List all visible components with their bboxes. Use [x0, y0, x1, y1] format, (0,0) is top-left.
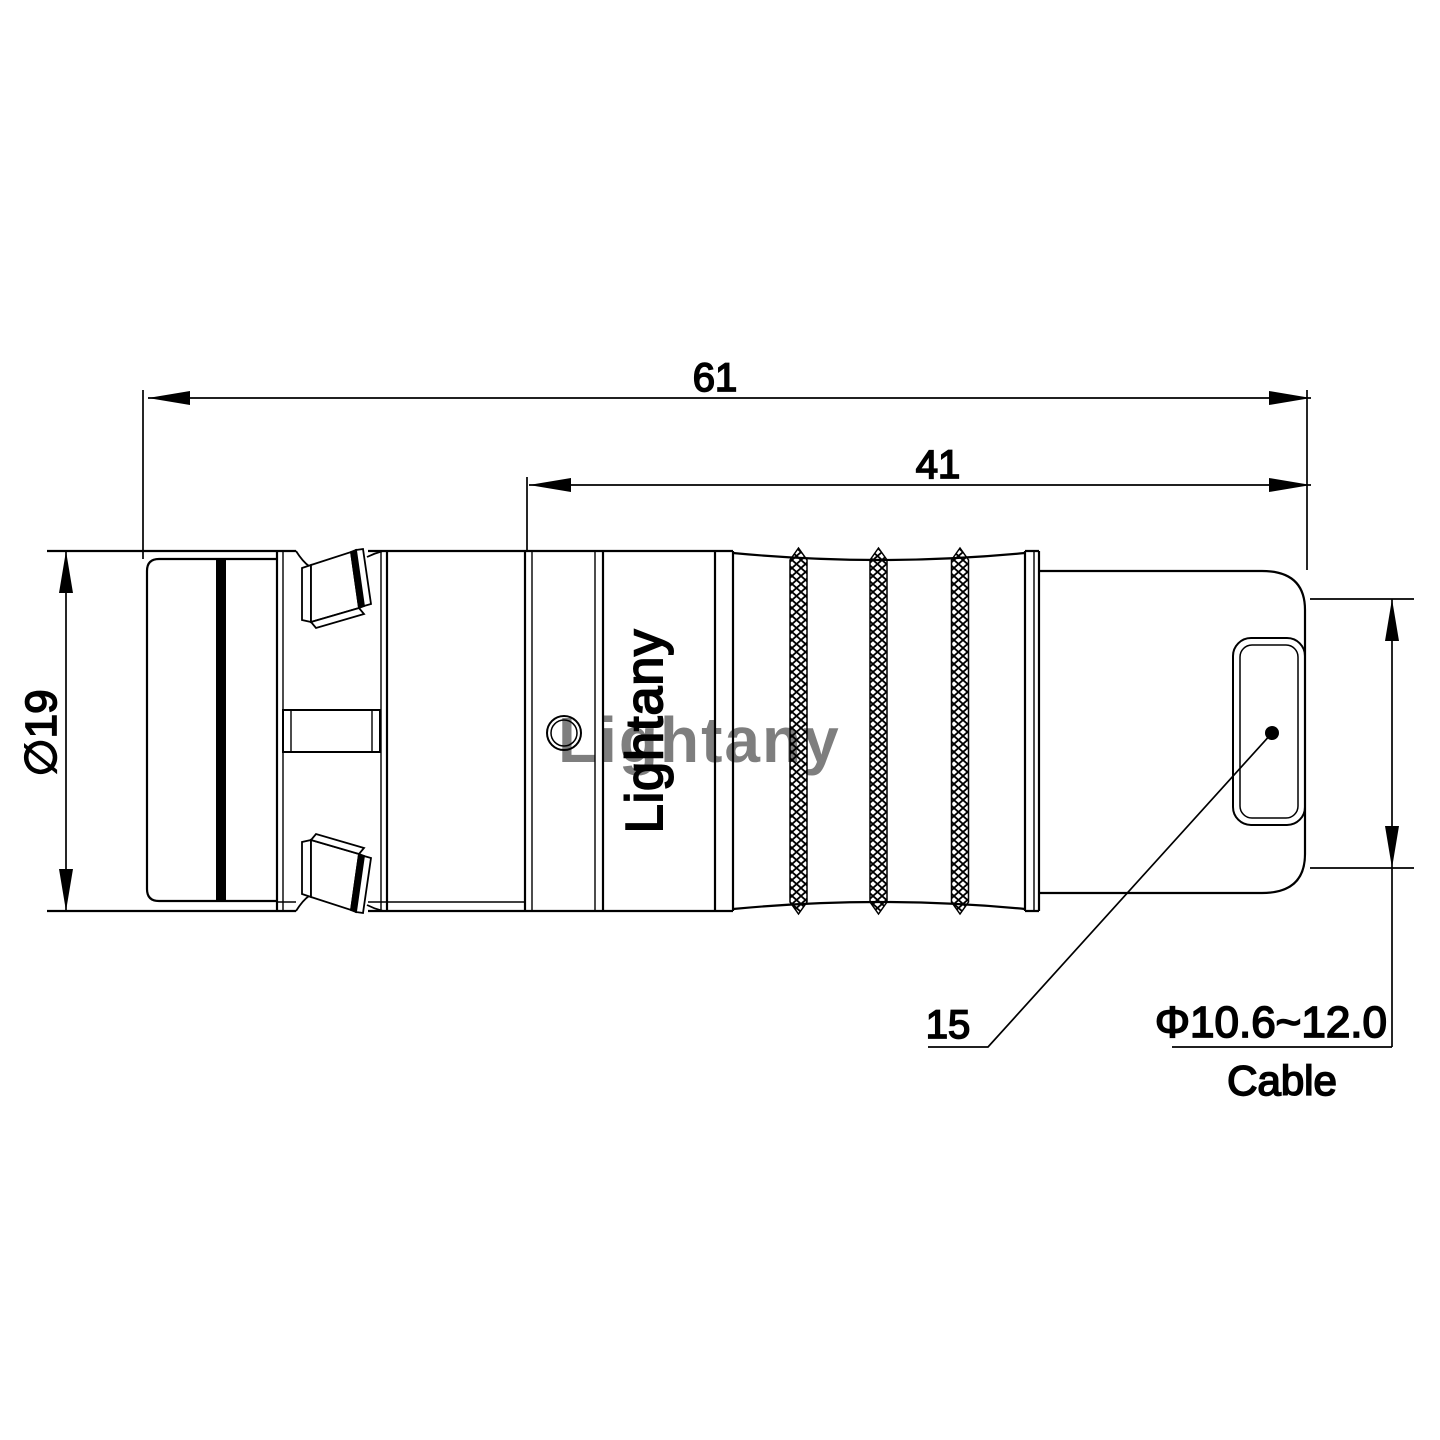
callout-15-label: 15	[926, 1003, 971, 1047]
knurl-band-3	[952, 548, 969, 914]
technical-drawing-page: Lightany	[0, 0, 1440, 1440]
cable-diameter-range-label: Φ10.6~12.0	[1155, 998, 1387, 1047]
dim-diameter-label: ∅19	[17, 689, 66, 776]
knurl-band-2	[870, 548, 887, 914]
dim-rear-length-label: 41	[916, 443, 961, 487]
cable-word-label: Cable	[1227, 1057, 1337, 1104]
brand-engraving: Lightany	[616, 629, 674, 834]
dim-overall-length-label: 61	[693, 356, 738, 400]
black-band	[216, 559, 226, 901]
knurl-band-1	[790, 548, 807, 914]
connector-technical-drawing: Lightany	[0, 0, 1440, 1440]
